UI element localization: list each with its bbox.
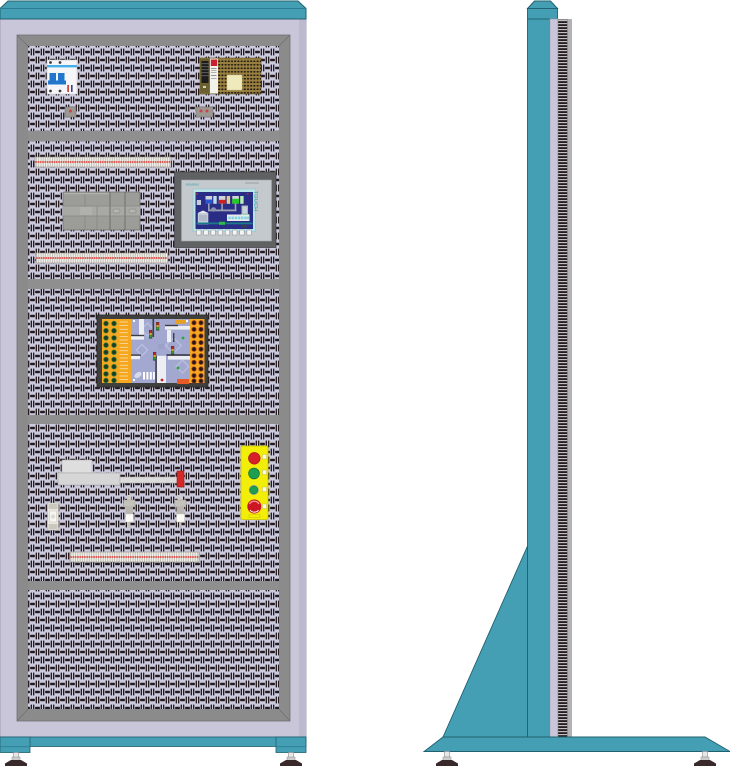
svg-text:SIEMENS: SIEMENS xyxy=(186,182,200,186)
svg-text:TOUCH: TOUCH xyxy=(252,191,258,212)
